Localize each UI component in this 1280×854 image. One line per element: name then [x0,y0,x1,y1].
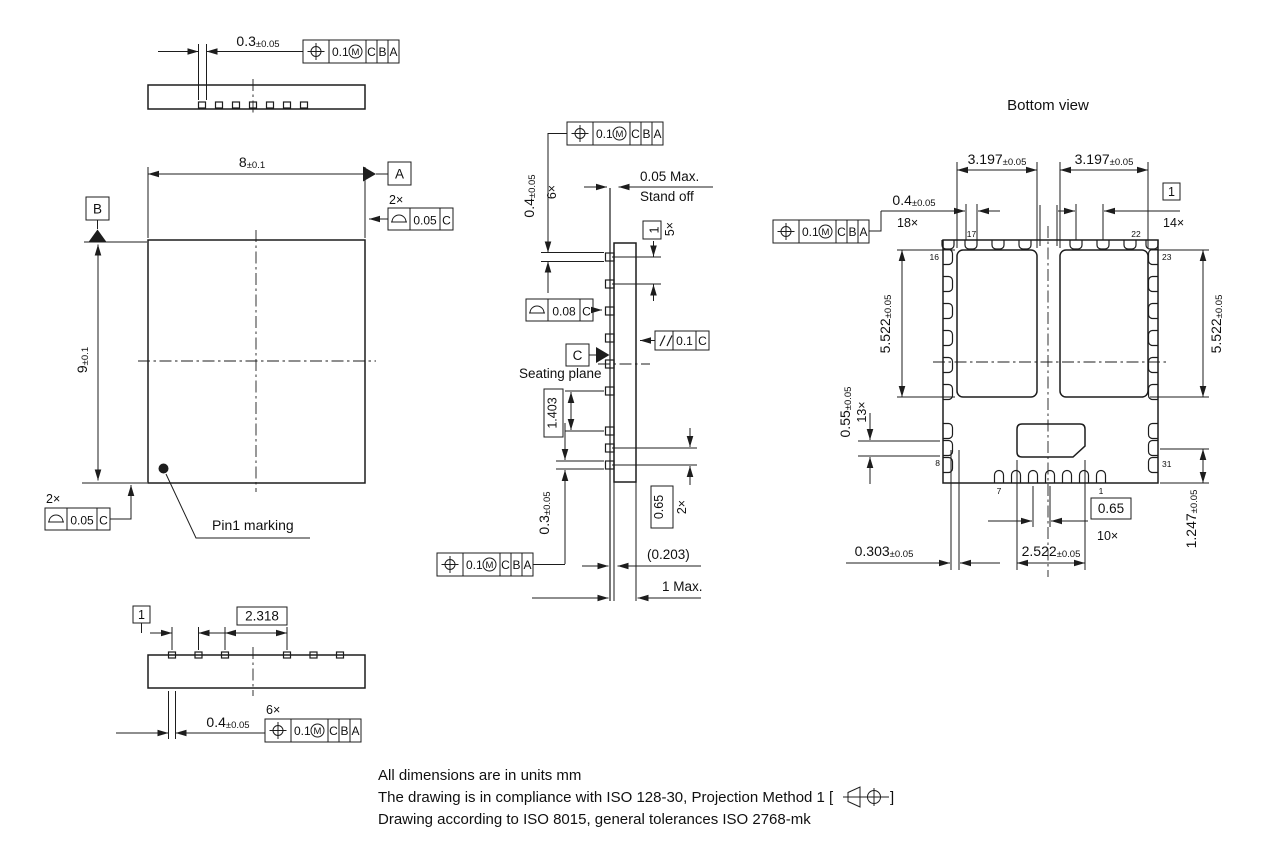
dim-5522-left-lines [897,250,955,397]
datum-b-triangle [89,230,107,243]
dim-lead-width-04-bottom-view: 0.4±0.05 [892,192,935,209]
package-top-view: 8±0.1 A 2× 0.05 C B 9±0.1 2× [45,154,453,538]
fcf-position-top-strip: 0.1 M C B A [303,40,399,63]
pin-label-17: 17 [967,229,977,239]
fcf-datum2: B [340,724,348,738]
fcf-parallelism: 0.1 C [640,331,709,350]
exposed-pad-left [957,250,1037,397]
pin-label-7: 7 [997,486,1002,496]
fcf-profile-right: 0.05 C [369,208,453,230]
datum-a-label: A [395,167,404,182]
exposed-pad-right [1060,250,1148,397]
standoff-value-label: 0.05 Max. [640,169,699,184]
count-2x-right: 2× [389,193,403,207]
tolerance-note: Drawing according to ISO 8015, general t… [378,811,811,828]
package-side-view: 0.1 M C B A 0.4±0.05 6× 0.05 Max. Stand … [437,122,713,601]
dim-width-8-lines [148,167,365,238]
bottom-view-bottom-leads [995,471,1106,484]
fcf-datum3: A [523,558,531,572]
dim-5522-right-lines [1150,250,1209,397]
dim-065-side-lines [612,428,697,485]
fcf-tolerance: 0.1 [466,558,483,572]
fcf-datum1: C [631,127,640,141]
parallelism-symbol-icon [660,336,672,347]
basic-dim-pitch-1-side: 1 [648,226,662,233]
svg-text:M: M [616,129,624,140]
count-5x: 5× [663,222,677,236]
fcf-datum1: C [501,558,510,572]
pin-label-22: 22 [1131,229,1141,239]
pin-label-1: 1 [1099,486,1104,496]
basic-dim-065-side: 0.65 [652,495,666,519]
position-symbol-icon [778,223,795,240]
material-modifier-icon: M [311,724,324,737]
profile-symbol-icon [391,215,407,222]
bottom-view-title: Bottom view [1007,97,1089,114]
dim-lead-width-055: 0.55±0.05 [837,387,854,438]
profile-symbol-icon [529,306,545,313]
pin1-marker-dot [159,464,169,474]
dim-pad-width-2522: 2.522±0.05 [1022,543,1081,560]
datum-c-label: C [573,348,583,363]
dim-pad-height-right: 5.522±0.05 [1208,295,1225,354]
count-6x: 6× [266,703,280,717]
count-2x-bottom: 2× [46,492,60,506]
compliance-note-bracket: ] [890,789,894,806]
fcf-datum1: C [367,45,376,59]
fcf-tolerance: 0.1 [332,45,349,59]
pin1-marking-label: Pin1 marking [212,517,294,533]
svg-text:M: M [314,726,322,737]
count-10x: 10× [1097,529,1118,543]
dim-lead-width-03-lines [158,44,303,100]
material-modifier-icon: M [613,127,626,140]
package-drawing-page: 0.3±0.05 0.1 M C B A 8±0.1 [0,0,1280,854]
dim-pad-width-left: 3.197±0.05 [968,151,1027,168]
bottom-view-top-leads [942,240,1158,249]
fcf-position-bottom-strip: 0.1 M C B A [265,719,361,742]
datum-b: B [84,197,147,242]
material-modifier-icon: M [349,45,362,58]
units-note: All dimensions are in units mm [378,767,581,784]
pin-number-labels: 17 22 16 23 8 31 7 1 [930,229,1172,496]
count-18x: 18× [897,216,918,230]
material-modifier-icon: M [483,558,496,571]
count-2x-side: 2× [675,500,689,514]
pin-label-23: 23 [1162,252,1172,262]
dim-lead-width-04-side-lines [541,134,604,294]
basic-dim-065-bottom-view: 0.65 [1098,501,1124,516]
standoff-text-label: Stand off [640,189,694,204]
material-modifier-icon: M [819,225,832,238]
fcf-position-side-bottom: 0.1 M C B A [437,553,565,576]
bottom-view-left-leads [943,250,953,473]
basic-dim-2318: 2.318 [245,609,279,624]
seating-plane-label: Seating plane [519,366,602,381]
basic-dim-pitch-1: 1 [138,608,145,622]
position-symbol-icon [572,125,589,142]
fcf-datum3: A [653,127,661,141]
datum-a: A [363,162,411,185]
datum-a-triangle [363,167,376,182]
fcf-tolerance: 0.05 [413,214,437,228]
dim-lead-width-04: 0.4±0.05 [206,714,249,731]
position-symbol-icon [442,556,459,573]
package-bottom-view: Bottom view [773,97,1225,577]
fcf-datum2: B [642,127,650,141]
dim-lead-width-04-lines [116,691,265,739]
pin-label-16: 16 [930,252,940,262]
technical-drawing-canvas: 0.3±0.05 0.1 M C B A 8±0.1 [0,0,1280,854]
pitch-dim-lines [142,623,288,650]
count-13x: 13× [855,401,869,422]
exposed-pad-small [1017,424,1085,457]
dim-065-bottom-view-lines [988,486,1088,527]
dim-lead-width-03-side: 0.3±0.05 [536,491,553,534]
position-symbol-icon [308,43,325,60]
dim-pad-offset-1247: 1.247±0.05 [1183,490,1200,549]
top-strip-view: 0.3±0.05 0.1 M C B A [148,33,399,115]
dim-lead-width-04-side: 0.4±0.05 [521,174,538,217]
fcf-position-bottom-view: 0.1 M C B A [773,211,881,243]
svg-text:M: M [822,227,830,238]
fcf-tolerance: 0.1 [596,127,613,141]
compliance-note: The drawing is in compliance with ISO 12… [378,789,834,806]
pin-label-31: 31 [1162,459,1172,469]
count-6x-side: 6× [545,185,559,199]
dim-body-width: 8±0.1 [239,154,265,171]
fcf-datum3: A [389,45,397,59]
dim-lead-03-side-lines [556,423,604,564]
fcf-tolerance: 0.1 [802,225,819,239]
fcf-datum3: A [351,724,359,738]
basic-dim-1403: 1.403 [546,397,560,428]
dim-edge-offset-0303: 0.303±0.05 [855,543,914,560]
dim-pad-height-left: 5.522±0.05 [877,295,894,354]
fcf-tolerance: 0.1 [294,724,311,738]
fcf-datum3: A [859,225,867,239]
fcf-datum: C [99,514,108,528]
dim-lead-width-03: 0.3±0.05 [236,33,279,50]
basic-dim-pitch-1-bottom-view: 1 [1168,185,1175,199]
fcf-datum2: B [512,558,520,572]
position-symbol-icon [270,722,287,739]
dim-pad-width-right: 3.197±0.05 [1075,151,1134,168]
fcf-tolerance: 0.1 [676,334,693,348]
datum-c: C [566,344,610,366]
svg-text:M: M [486,560,494,571]
fcf-datum1: C [329,724,338,738]
projection-method-icon [843,787,889,807]
fcf-datum: C [698,334,707,348]
datum-b-label: B [93,202,102,217]
fcf-datum2: B [848,225,856,239]
count-14x: 14× [1163,216,1184,230]
fcf-datum1: C [837,225,846,239]
dim-1403-lines [565,391,604,431]
dim-055-lines [858,413,940,484]
fcf-datum: C [442,214,451,228]
dim-1max-label: 1 Max. [662,579,703,594]
dim-body-height: 9±0.1 [74,347,91,373]
pin-label-8: 8 [935,458,940,468]
svg-text:M: M [352,47,360,58]
fcf-profile-side: 0.08 C [526,299,602,321]
fcf-datum2: B [378,45,386,59]
fcf-tolerance: 0.05 [70,514,94,528]
fcf-datum: C [582,305,591,319]
profile-symbol-icon [48,515,64,522]
fcf-position-side-top: 0.1 M C B A [567,122,663,145]
fcf-tolerance: 0.08 [552,305,576,319]
bottom-strip-view: 1 2.318 0.4±0.05 6× 0.1 M C B A [116,606,365,742]
bottom-view-right-leads [1149,250,1159,473]
datum-c-triangle [596,347,610,363]
footer-notes: All dimensions are in units mm The drawi… [378,767,894,828]
dim-0203-label: (0.203) [647,547,690,562]
